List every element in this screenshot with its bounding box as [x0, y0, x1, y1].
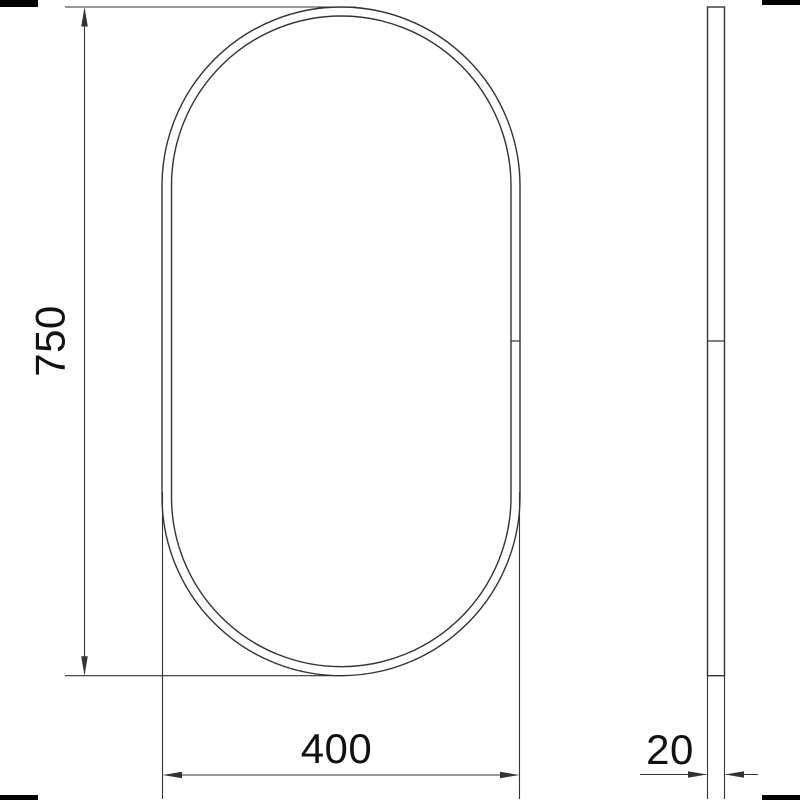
crop-mark-top-left	[0, 0, 38, 7]
thickness-arrowheads	[688, 771, 744, 777]
crop-mark-bottom-right	[762, 795, 800, 800]
linework	[65, 7, 758, 799]
arrowhead-left-icon	[163, 772, 182, 779]
crop-mark-top-right	[762, 0, 800, 5]
width-dimension-label: 400	[301, 725, 373, 772]
arrowhead-up-icon	[81, 7, 88, 26]
side-view	[708, 7, 725, 676]
technical-drawing: 750 400 20	[0, 0, 800, 800]
mirror-inner-outline	[172, 16, 512, 667]
dimension-height	[65, 7, 356, 676]
thickness-dimension-label: 20	[646, 726, 694, 773]
crop-marks	[0, 0, 800, 800]
height-dimension-label: 750	[27, 305, 74, 377]
dimension-labels: 750 400 20	[27, 305, 694, 773]
arrowhead-inward-left-icon	[725, 771, 744, 777]
arrowhead-right-icon	[500, 772, 519, 779]
front-view	[162, 7, 521, 676]
mirror-outer-outline	[162, 7, 520, 676]
arrowhead-down-icon	[81, 656, 88, 675]
crop-mark-bottom-left	[0, 795, 38, 800]
